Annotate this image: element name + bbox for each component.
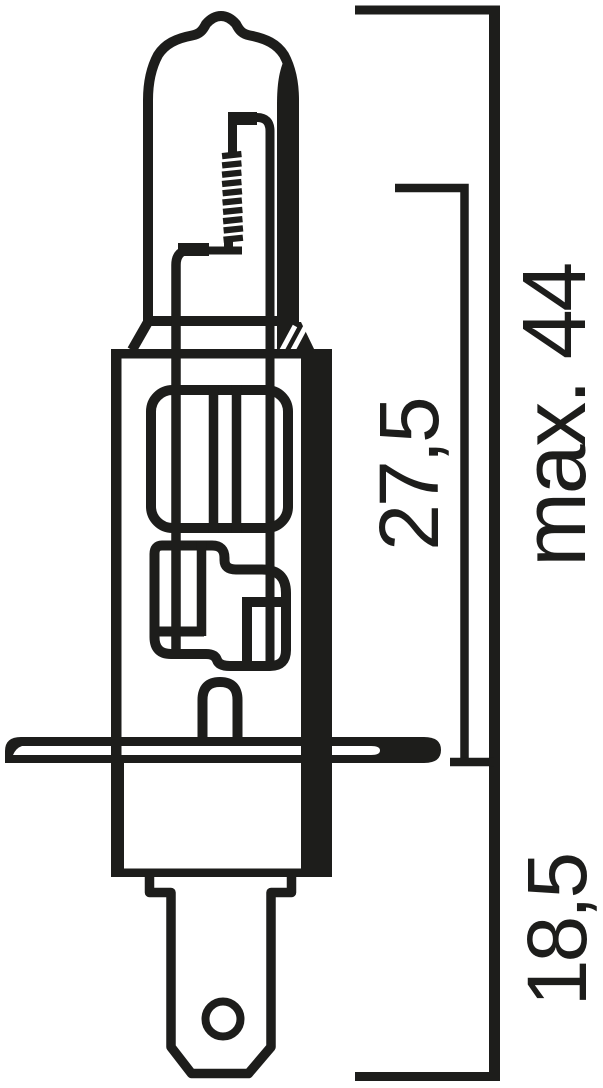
svg-text:18,5: 18,5 xyxy=(510,854,603,1006)
svg-text:27,5: 27,5 xyxy=(362,399,456,551)
svg-text:max. 44: max. 44 xyxy=(505,264,603,567)
